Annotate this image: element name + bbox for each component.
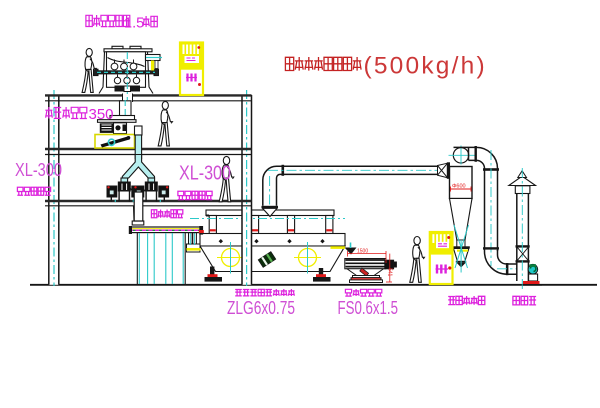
svg-text:1.5: 1.5 (124, 16, 144, 32)
svg-text:ZLG6x0.75: ZLG6x0.75 (227, 298, 295, 318)
svg-text:350: 350 (89, 106, 114, 123)
svg-text:XL-300: XL-300 (179, 163, 231, 185)
svg-text:(500kg/h): (500kg/h) (364, 53, 487, 80)
svg-text:541: 541 (386, 268, 392, 277)
svg-text:XL-300: XL-300 (15, 160, 62, 180)
svg-text:Φ600: Φ600 (452, 184, 466, 190)
svg-text:FS0.6x1.5: FS0.6x1.5 (338, 298, 399, 318)
svg-text:1500: 1500 (357, 249, 368, 255)
